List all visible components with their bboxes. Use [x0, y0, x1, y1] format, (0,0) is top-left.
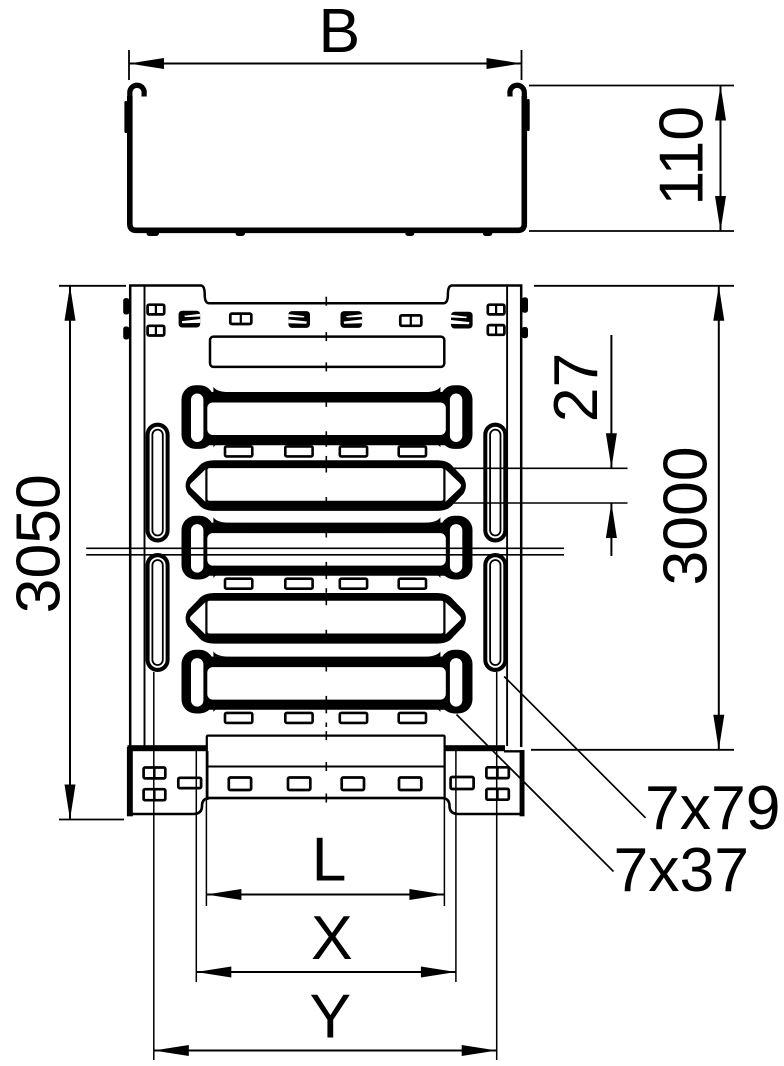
- svg-text:3050: 3050: [4, 474, 74, 613]
- svg-text:X: X: [311, 903, 353, 973]
- svg-text:3000: 3000: [650, 446, 720, 585]
- svg-text:27: 27: [541, 353, 611, 423]
- svg-text:7x37: 7x37: [614, 835, 750, 905]
- svg-text:L: L: [312, 824, 347, 894]
- svg-text:B: B: [318, 0, 360, 66]
- svg-text:7x79: 7x79: [645, 773, 781, 843]
- svg-text:Y: Y: [310, 981, 352, 1051]
- svg-text:110: 110: [647, 106, 717, 206]
